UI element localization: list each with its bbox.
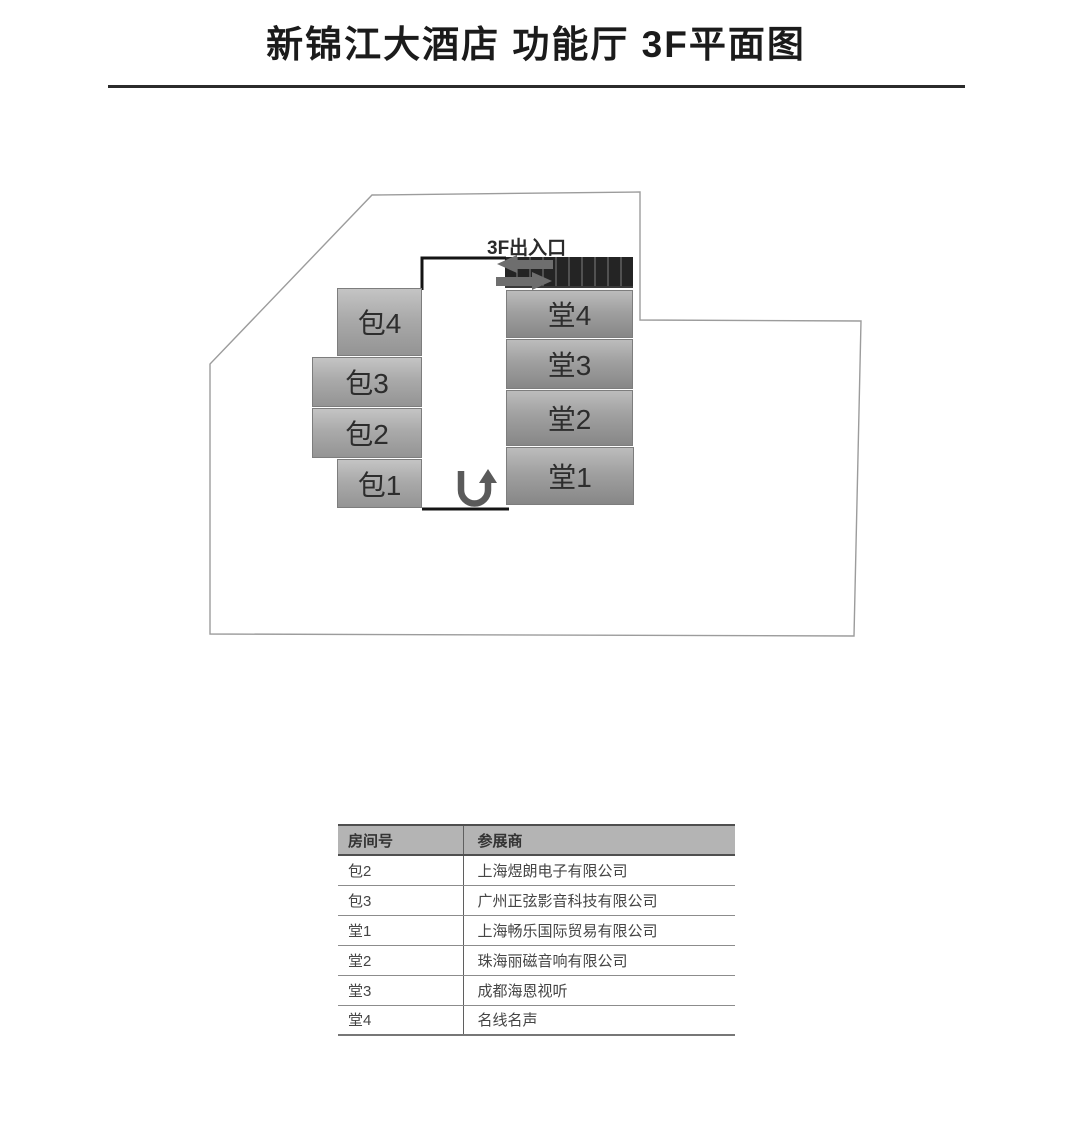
corridor-wall-top [422,258,506,290]
room-tang3: 堂3 [506,339,633,389]
table-row: 包3 广州正弦影音科技有限公司 [338,885,735,915]
entrance-label: 3F出入口 [487,233,566,260]
room-cell: 包2 [338,855,463,885]
room-bao4-label: 包4 [358,302,402,342]
exhibitor-table: 房间号 参展商 包2 上海煜朗电子有限公司 包3 广州正弦影音科技有限公司 堂1… [338,824,735,1036]
room-cell: 堂2 [338,945,463,975]
exhibitor-cell: 名线名声 [463,1005,735,1035]
arrow-right-icon [496,272,552,290]
room-tang3-label: 堂3 [548,344,592,384]
room-tang1-label: 堂1 [548,456,592,496]
table-row: 堂2 珠海丽磁音响有限公司 [338,945,735,975]
room-tang4-label: 堂4 [548,294,592,334]
room-tang1: 堂1 [506,447,634,505]
u-turn-arrowhead-icon [479,469,497,483]
exhibitor-cell: 珠海丽磁音响有限公司 [463,945,735,975]
room-tang2-label: 堂2 [548,398,592,438]
table-row: 堂3 成都海恩视听 [338,975,735,1005]
floor-plan: 3F出入口 包4 包3 包2 包1 堂4 堂3 堂2 堂1 [0,0,1072,760]
header-exhibitor: 参展商 [463,825,735,855]
header-room-number: 房间号 [338,825,463,855]
exhibitor-table-section: 房间号 参展商 包2 上海煜朗电子有限公司 包3 广州正弦影音科技有限公司 堂1… [338,824,735,1036]
room-cell: 堂1 [338,915,463,945]
exhibitor-cell: 广州正弦影音科技有限公司 [463,885,735,915]
table-header-row: 房间号 参展商 [338,825,735,855]
room-bao2: 包2 [312,408,422,458]
exhibitor-cell: 上海煜朗电子有限公司 [463,855,735,885]
room-cell: 包3 [338,885,463,915]
room-bao4: 包4 [337,288,422,356]
room-bao1-label: 包1 [358,464,402,504]
room-bao1: 包1 [337,459,422,508]
room-bao3: 包3 [312,357,422,407]
page: 新锦江大酒店 功能厅 3F平面图 3F出入口 包4 包3 包2 包1 堂4 [0,0,1072,1145]
room-bao3-label: 包3 [345,362,389,402]
exhibitor-cell: 成都海恩视听 [463,975,735,1005]
room-tang2: 堂2 [506,390,633,446]
table-row: 堂4 名线名声 [338,1005,735,1035]
room-tang4: 堂4 [506,290,633,338]
table-row: 包2 上海煜朗电子有限公司 [338,855,735,885]
room-cell: 堂3 [338,975,463,1005]
exhibitor-cell: 上海畅乐国际贸易有限公司 [463,915,735,945]
room-cell: 堂4 [338,1005,463,1035]
room-bao2-label: 包2 [345,413,389,453]
table-row: 堂1 上海畅乐国际贸易有限公司 [338,915,735,945]
